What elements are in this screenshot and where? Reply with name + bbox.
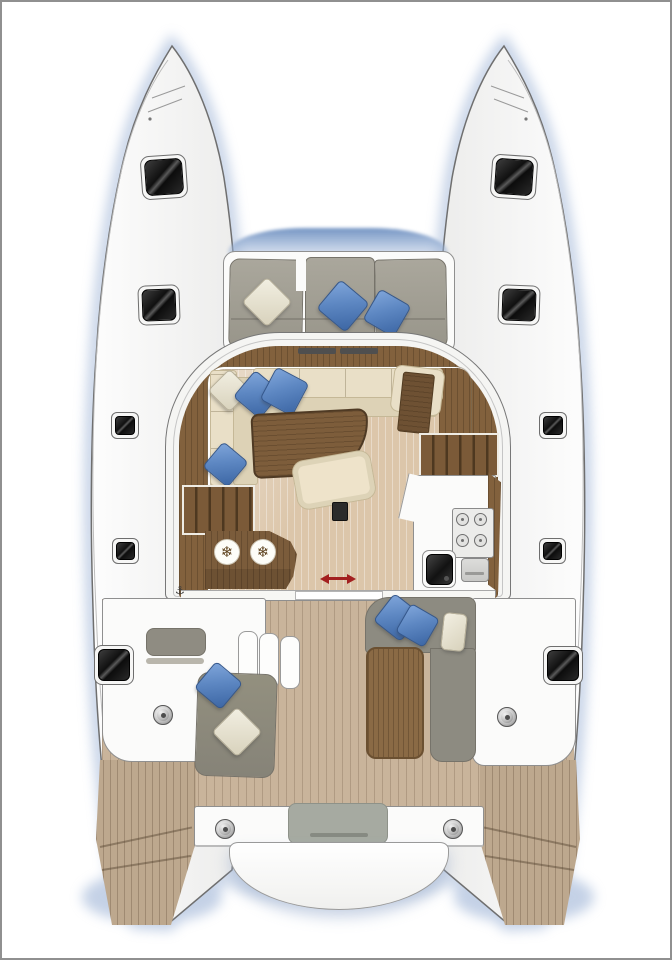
sliding-door-arrow — [319, 573, 357, 584]
winch — [497, 707, 517, 727]
hatch-glass — [501, 288, 536, 321]
fridge-front-edge — [205, 569, 291, 589]
companionway-stairs-port — [182, 485, 255, 535]
deck-hatch — [94, 645, 134, 685]
sink — [426, 554, 453, 585]
deck-hatch — [543, 646, 583, 685]
oven — [461, 558, 489, 582]
deck-hatch — [137, 284, 180, 325]
winch — [153, 705, 173, 725]
stern-beam-pad — [288, 803, 388, 844]
anchor-locker-notch — [296, 257, 306, 291]
stove-burner — [456, 513, 469, 526]
cockpit-table — [366, 647, 424, 759]
hatch-glass — [547, 650, 579, 681]
roof-slot — [298, 348, 336, 354]
deck-hatch — [111, 412, 139, 439]
fridge-icon: ❄ — [250, 539, 276, 565]
roof-slot — [340, 348, 378, 354]
stove-burner — [474, 513, 487, 526]
aft-sofa-side — [430, 648, 476, 762]
deck-hatch — [539, 412, 567, 439]
winch — [215, 819, 235, 839]
hatch-glass — [116, 542, 135, 560]
transom-step-edge — [485, 855, 574, 871]
hatch-glass — [543, 542, 562, 560]
cleat-anchor-icon: ⚓ — [175, 585, 185, 596]
deck-hatch — [140, 153, 189, 200]
deck-hatch — [497, 284, 540, 325]
helm-bench-rail — [146, 658, 204, 664]
floorplan-canvas: ❄ ❄ ⚓ — [0, 0, 672, 960]
aft-pillow-white — [440, 612, 468, 652]
arrow-right-head — [347, 574, 356, 584]
step — [280, 636, 300, 689]
sliding-door-threshold — [295, 591, 383, 600]
hatch-glass — [115, 416, 135, 435]
stove — [452, 508, 494, 558]
stove-burner — [456, 534, 469, 547]
hatch-glass — [98, 649, 130, 681]
transom-step-edge — [100, 826, 192, 847]
transom-step-edge — [484, 826, 576, 847]
deck-hatch — [490, 153, 539, 200]
arrow-bar — [329, 577, 347, 580]
deck-hatch — [112, 538, 139, 564]
nav-chart-table — [397, 371, 435, 434]
helm-bench-cushion — [146, 628, 206, 656]
arrow-left-head — [320, 574, 329, 584]
stove-burner — [474, 534, 487, 547]
pad-slot — [310, 833, 368, 837]
deck-hatch — [539, 538, 566, 564]
hatch-glass — [144, 158, 184, 197]
oven-door-line — [465, 572, 484, 575]
companionway-stairs-starboard — [419, 433, 499, 477]
sink-faucet — [444, 576, 449, 581]
mast-post — [332, 502, 348, 521]
winch — [443, 819, 463, 839]
hatch-glass — [141, 288, 176, 321]
hatch-glass — [494, 158, 534, 197]
fridge-icon: ❄ — [214, 539, 240, 565]
hatch-glass — [543, 416, 563, 435]
transom-step-edge — [102, 855, 191, 871]
